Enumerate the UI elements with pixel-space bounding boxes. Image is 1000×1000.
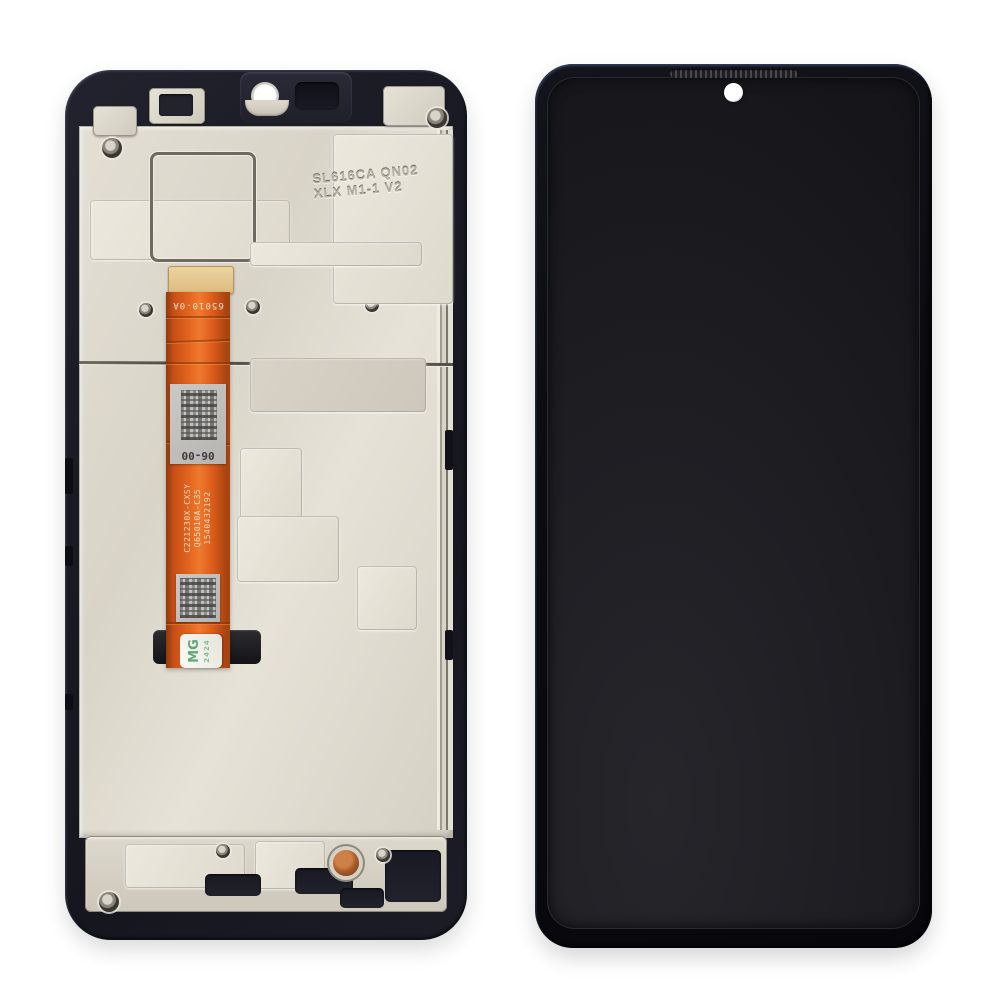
camera-hole-sticker [724,83,743,102]
flex-marking: 65010-0A [166,300,230,310]
connector-pad [225,630,261,664]
screw-hole [99,892,119,912]
copper-contact [333,850,359,876]
top-metal-tab [93,106,137,136]
qr-label-2 [176,574,220,622]
side-key-notch [65,694,73,710]
plate-relief [357,566,417,630]
bottom-cutout [340,888,384,908]
display-screen [547,77,920,929]
tab-cutout [159,94,193,116]
plate-relief [237,516,339,582]
screw-hole [102,138,122,158]
camera-bracket [245,100,289,116]
camera-boss [150,152,256,262]
flex-stiffener [168,266,234,294]
top-metal-tab [149,88,205,124]
qr-code [180,578,216,618]
earpiece-cutout [295,82,339,110]
engraved-panel [333,134,453,304]
earpiece-mesh [670,69,798,78]
flex-cable: 65010-0A 06-00 C221230X-CXSY Q65010A-C35… [166,292,230,668]
qr-label-1: 06-00 [170,384,226,464]
rail-notch [445,430,453,470]
screw-hole [246,300,260,314]
serial-line2: Q65010A-C35 [193,483,203,552]
bottom-cutout [385,850,441,902]
mg-sticker-text: MG 2424 [189,639,213,663]
serial-line3: C221230X-CXSY [183,483,193,552]
mg-sticker: MG 2424 [180,634,222,668]
screw-hole [376,848,390,862]
screw-hole [139,303,153,317]
label-code: 06-00 [170,449,226,462]
qr-code [181,390,217,440]
adhesive-patch [250,358,426,412]
product-photo: SL616CA QN02 XLX M1-1 V2 [0,0,1000,1000]
flex-serials: C221230X-CXSY Q65010A-C35 1540432192 [150,470,246,566]
front-display [535,64,932,948]
bottom-molding [85,836,447,912]
side-key-notch [65,546,73,566]
rail-notch [445,630,453,660]
screw-hole [216,844,230,858]
mg-sticker-subtext: 2424 [201,639,213,663]
plate-relief [250,242,422,266]
back-frame: SL616CA QN02 XLX M1-1 V2 [65,70,467,940]
serial-line1: 1540432192 [203,483,213,552]
side-key-notch [65,458,73,494]
bottom-cutout [205,874,261,896]
screw-hole [427,108,447,128]
